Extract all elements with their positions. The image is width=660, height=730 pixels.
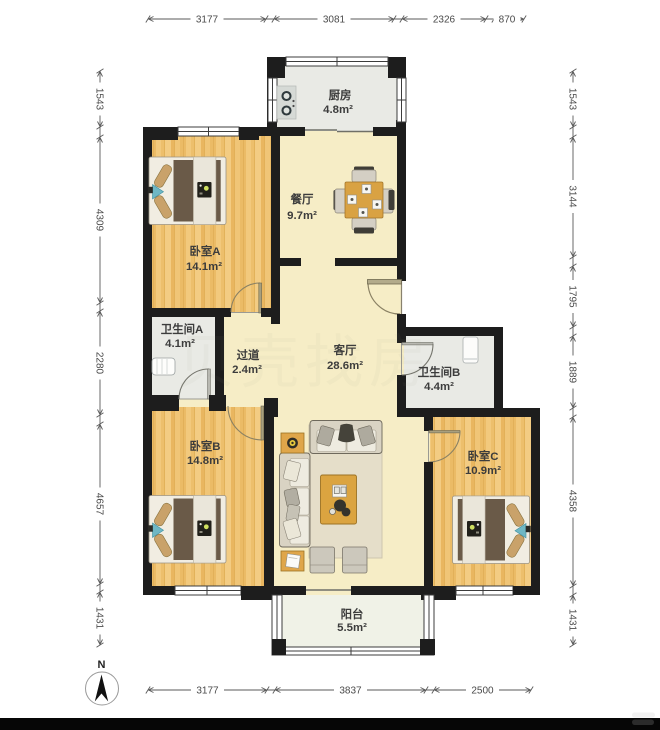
svg-text:870: 870 [499,15,516,26]
svg-text:2500: 2500 [471,686,494,697]
svg-text:1543: 1543 [94,88,105,111]
svg-text:10.9m²: 10.9m² [465,465,501,477]
svg-text:3837: 3837 [339,686,362,697]
svg-text:1889: 1889 [567,361,578,384]
svg-text:2326: 2326 [433,15,456,26]
svg-text:4.8m²: 4.8m² [323,104,353,116]
svg-text:9.7m²: 9.7m² [287,210,317,222]
svg-text:卧室A: 卧室A [189,244,220,258]
svg-text:3144: 3144 [567,185,578,208]
svg-text:3177: 3177 [196,686,219,697]
svg-text:阳台: 阳台 [341,607,364,621]
svg-text:4358: 4358 [567,490,578,513]
svg-text:1795: 1795 [567,285,578,308]
svg-text:卧室C: 卧室C [467,449,498,463]
svg-text:14.8m²: 14.8m² [187,455,223,467]
svg-text:3081: 3081 [323,15,346,26]
svg-text:贝壳找房: 贝壳找房 [177,330,433,395]
svg-text:N: N [98,659,106,671]
svg-text:1431: 1431 [94,607,105,630]
svg-text:厨房: 厨房 [329,88,352,102]
svg-text:3177: 3177 [196,15,219,26]
svg-text:4657: 4657 [94,493,105,516]
svg-text:卧室B: 卧室B [189,439,220,453]
svg-text:餐厅: 餐厅 [290,192,314,206]
svg-text:4309: 4309 [94,209,105,232]
svg-text:1543: 1543 [567,88,578,111]
svg-text:1431: 1431 [567,609,578,632]
svg-text:2280: 2280 [94,352,105,375]
svg-text:14.1m²: 14.1m² [186,261,222,273]
svg-text:5.5m²: 5.5m² [337,622,367,634]
